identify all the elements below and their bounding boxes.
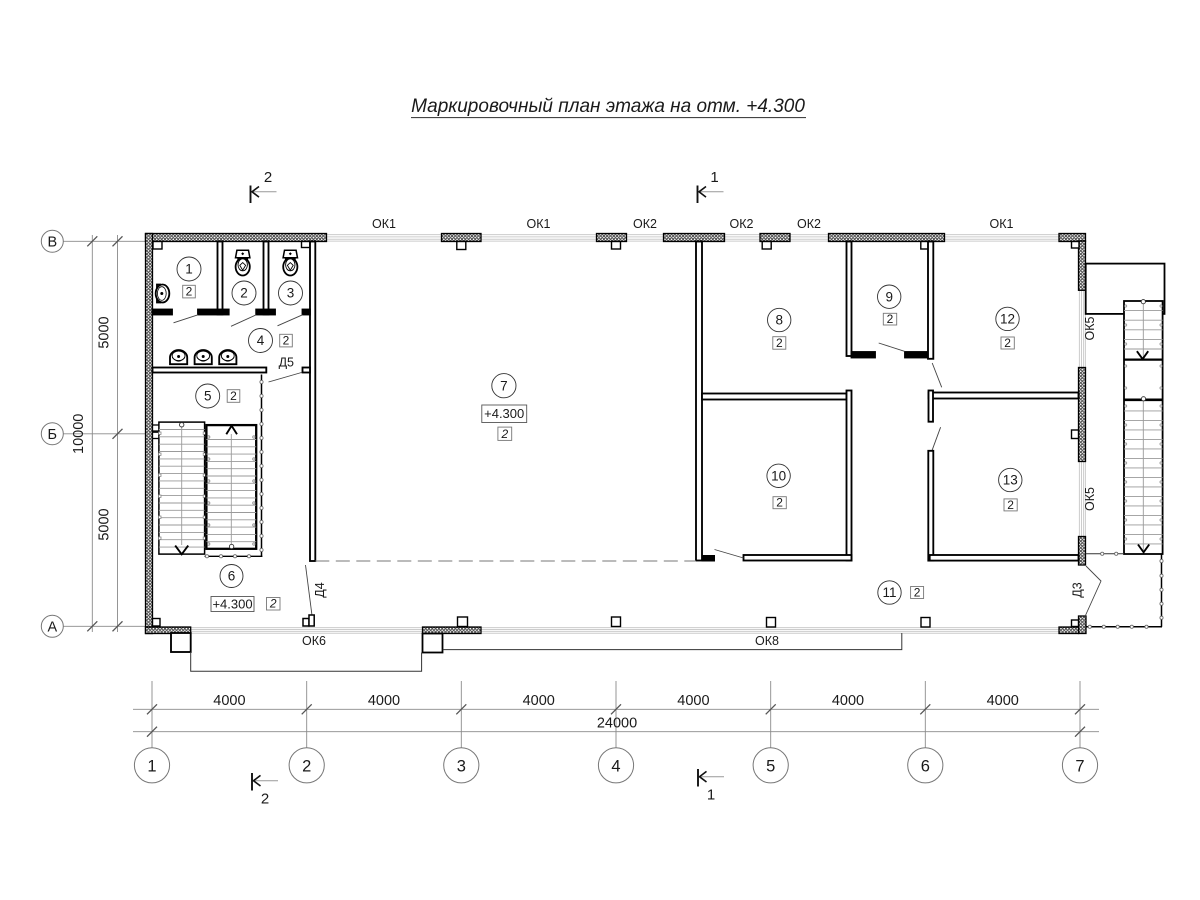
- svg-text:13: 13: [1003, 473, 1018, 488]
- svg-text:ОК5: ОК5: [1083, 487, 1097, 511]
- svg-text:11: 11: [882, 585, 896, 600]
- svg-text:7: 7: [500, 378, 508, 393]
- svg-text:2: 2: [261, 791, 269, 808]
- svg-text:2: 2: [230, 389, 237, 403]
- svg-text:2: 2: [500, 427, 508, 441]
- svg-text:6: 6: [228, 569, 236, 584]
- svg-text:10000: 10000: [71, 414, 87, 454]
- svg-text:ОК2: ОК2: [730, 217, 754, 231]
- svg-text:1: 1: [710, 169, 718, 186]
- svg-text:2: 2: [914, 585, 921, 599]
- svg-text:ОК6: ОК6: [302, 634, 326, 648]
- svg-text:2: 2: [887, 312, 894, 326]
- svg-text:6: 6: [921, 757, 930, 775]
- svg-text:ОК8: ОК8: [755, 634, 779, 648]
- svg-text:2: 2: [269, 597, 277, 611]
- svg-text:3: 3: [457, 757, 466, 775]
- svg-text:Д4: Д4: [313, 582, 327, 597]
- svg-text:2: 2: [264, 169, 272, 186]
- svg-text:5000: 5000: [97, 508, 113, 540]
- svg-text:8: 8: [775, 313, 783, 328]
- svg-text:10: 10: [771, 469, 786, 484]
- svg-text:1: 1: [707, 787, 715, 804]
- svg-text:5: 5: [204, 389, 212, 404]
- svg-text:2: 2: [776, 336, 783, 350]
- svg-text:ОК1: ОК1: [527, 217, 551, 231]
- svg-text:2: 2: [186, 285, 193, 299]
- svg-text:ОК2: ОК2: [797, 217, 821, 231]
- svg-text:2: 2: [302, 757, 311, 775]
- svg-text:2: 2: [283, 334, 290, 348]
- svg-text:4000: 4000: [213, 693, 245, 709]
- svg-text:1: 1: [147, 757, 156, 775]
- svg-text:ОК1: ОК1: [372, 217, 396, 231]
- svg-text:4: 4: [611, 757, 620, 775]
- svg-text:5: 5: [766, 757, 775, 775]
- svg-text:12: 12: [1000, 312, 1015, 327]
- svg-text:Д5: Д5: [279, 356, 294, 370]
- svg-text:2: 2: [240, 286, 248, 301]
- svg-text:5000: 5000: [97, 316, 113, 348]
- svg-text:4000: 4000: [832, 693, 864, 709]
- svg-text:4000: 4000: [987, 693, 1019, 709]
- svg-text:В: В: [47, 234, 57, 250]
- svg-text:ОК2: ОК2: [633, 217, 657, 231]
- svg-text:7: 7: [1075, 757, 1084, 775]
- svg-text:4: 4: [257, 333, 265, 348]
- svg-text:4000: 4000: [677, 693, 709, 709]
- svg-text:+4.300: +4.300: [212, 596, 252, 611]
- svg-text:3: 3: [287, 286, 295, 301]
- svg-text:4000: 4000: [368, 693, 400, 709]
- svg-text:А: А: [47, 619, 57, 635]
- svg-text:+4.300: +4.300: [484, 406, 524, 421]
- svg-text:4000: 4000: [523, 693, 555, 709]
- svg-text:ОК5: ОК5: [1083, 316, 1097, 340]
- svg-text:1: 1: [185, 262, 193, 277]
- svg-text:ОК1: ОК1: [990, 217, 1014, 231]
- svg-text:Б: Б: [48, 427, 58, 443]
- svg-text:9: 9: [885, 289, 893, 304]
- svg-text:24000: 24000: [597, 716, 637, 732]
- svg-text:2: 2: [1007, 498, 1014, 512]
- svg-text:Д3: Д3: [1071, 582, 1085, 597]
- svg-text:2: 2: [1004, 336, 1011, 350]
- svg-text:2: 2: [776, 496, 783, 510]
- svg-text:Маркировочный план этажа на от: Маркировочный план этажа на отм. +4.300: [411, 96, 805, 117]
